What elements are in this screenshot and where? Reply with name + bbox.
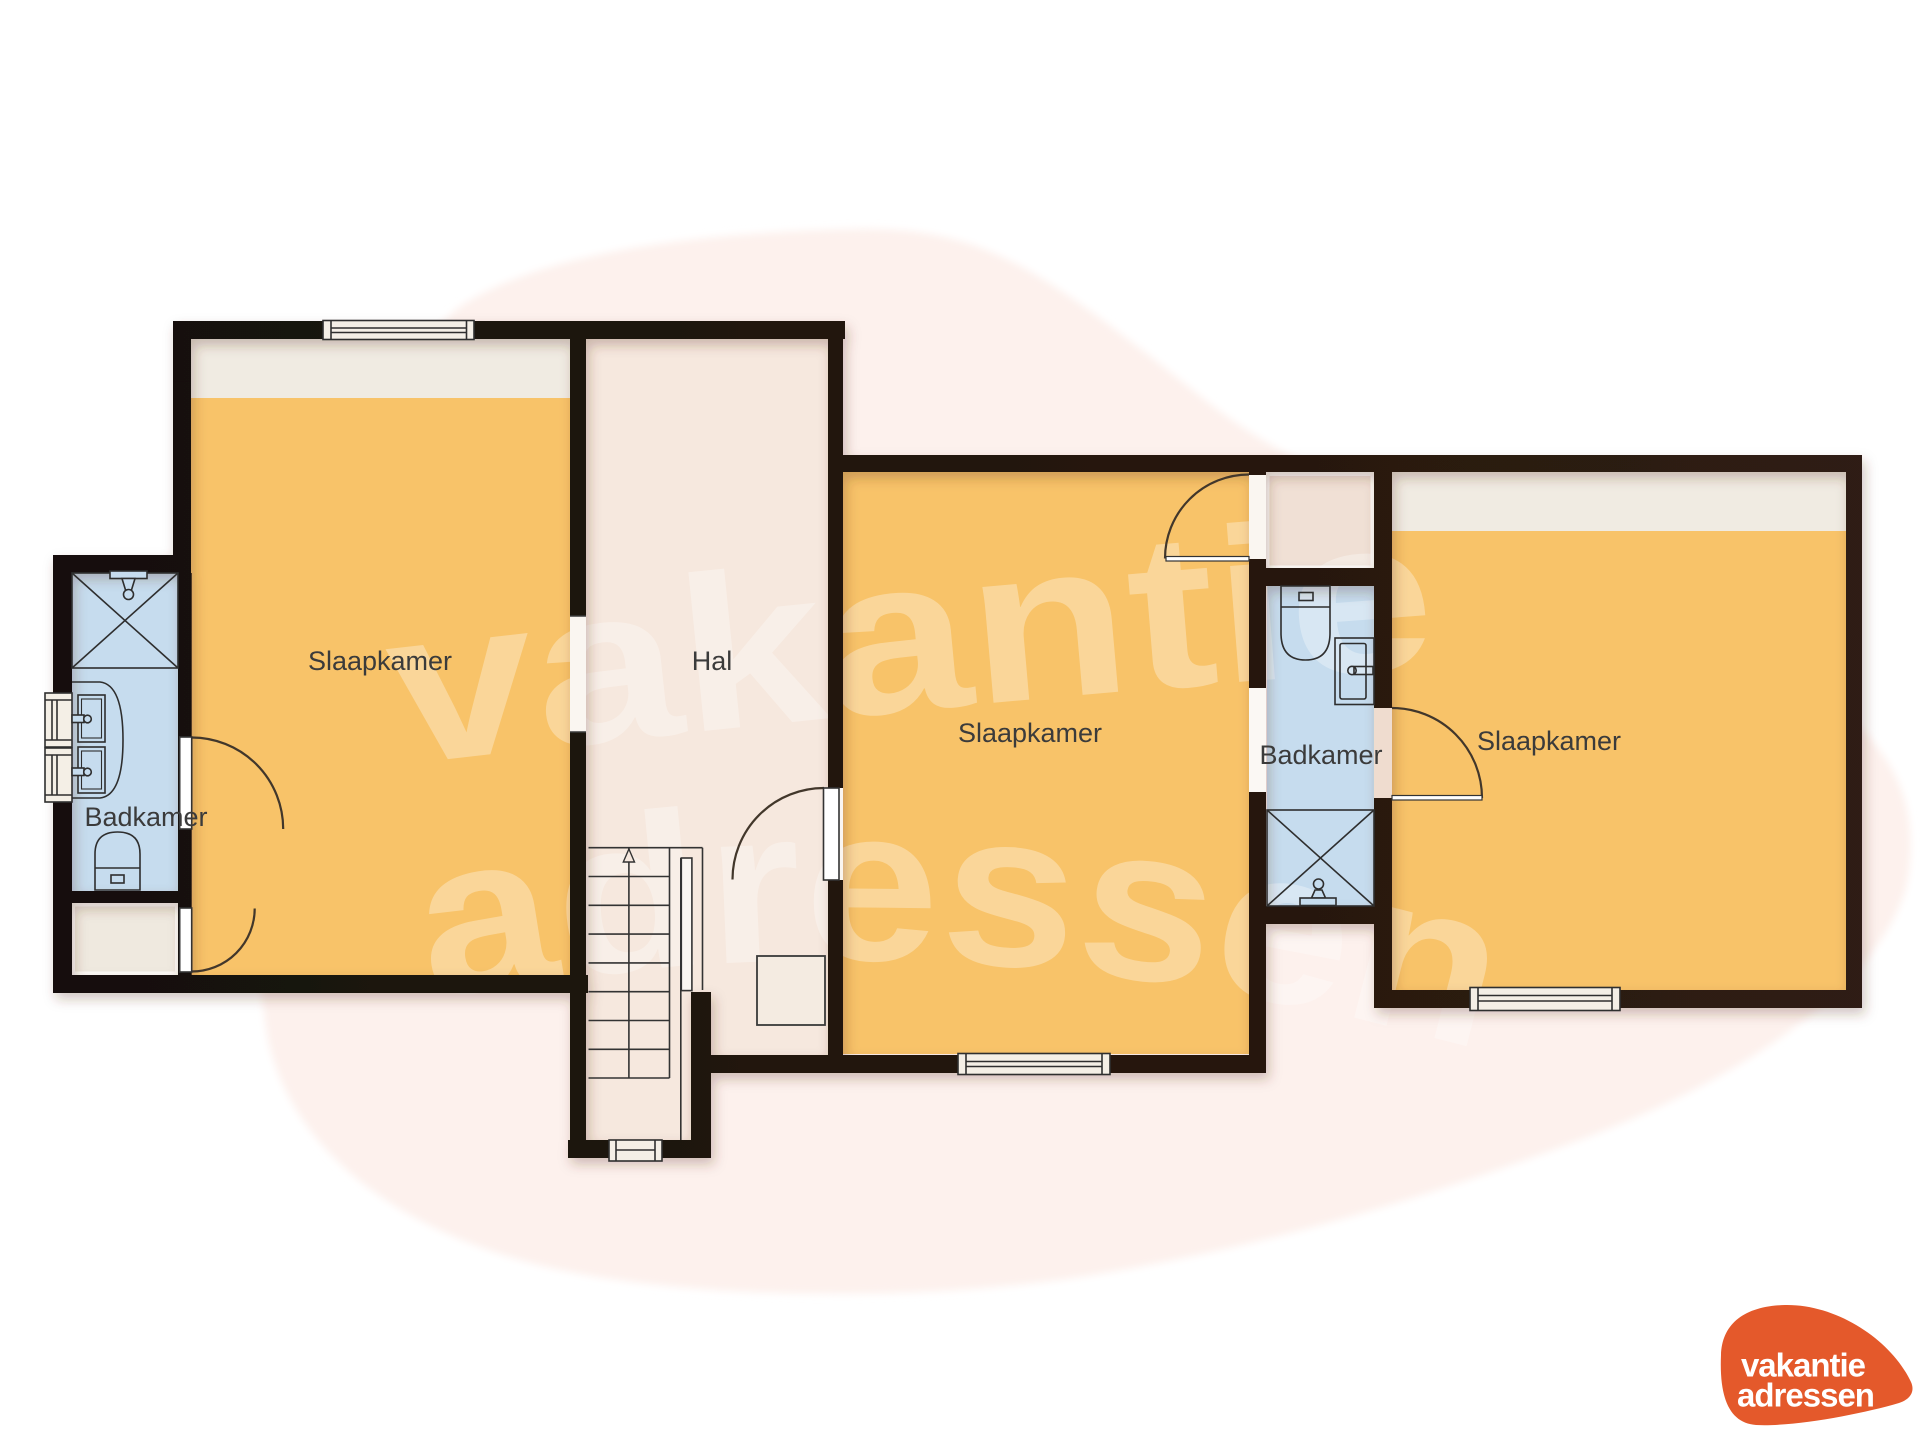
svg-text:Hal: Hal bbox=[692, 646, 733, 676]
svg-text:Slaapkamer: Slaapkamer bbox=[1477, 726, 1621, 756]
svg-text:Badkamer: Badkamer bbox=[1259, 740, 1382, 770]
svg-text:Slaapkamer: Slaapkamer bbox=[958, 718, 1102, 748]
svg-text:Slaapkamer: Slaapkamer bbox=[308, 646, 452, 676]
svg-text:adressen: adressen bbox=[1737, 1377, 1874, 1414]
svg-text:Badkamer: Badkamer bbox=[84, 802, 207, 832]
